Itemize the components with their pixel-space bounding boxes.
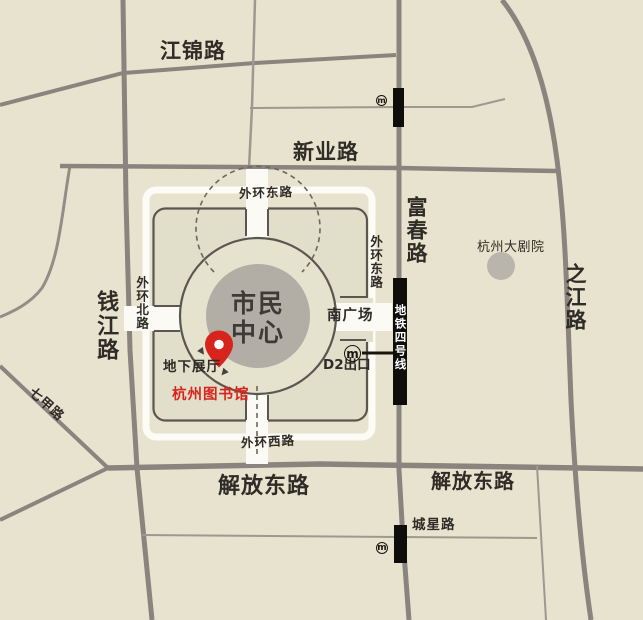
road-label-outer-east-top: 外环东路 — [239, 185, 293, 200]
road-label-outer-east-side: 外环东路 — [369, 235, 382, 289]
road-qijia-branch — [0, 468, 108, 520]
road-label-jiefang-right: 解放东路 — [431, 471, 515, 492]
metro-line4-label: 地铁四号线 — [394, 304, 406, 372]
place-label-south-square: 南广场 — [327, 309, 374, 324]
road-xinye — [60, 166, 556, 171]
road-label-chengxing: 城星路 — [412, 518, 456, 532]
road-minor-southeast — [537, 466, 546, 620]
metro-station-icon[interactable]: m — [376, 95, 387, 106]
road-label-zhijiang: 之江路 — [564, 263, 586, 332]
metro-m-glyph: m — [346, 347, 359, 361]
place-label-underground-hall: 地下展厅 — [163, 360, 221, 374]
road-minor-north-vertical — [249, 0, 255, 168]
road-label-jiangjin: 江锦路 — [160, 40, 226, 62]
road-label-outer-north: 外环北路 — [135, 276, 148, 330]
road-jiefang-east — [108, 464, 643, 469]
metro-station-north[interactable] — [393, 88, 404, 127]
road-label-xinye: 新业路 — [293, 141, 359, 163]
metro-m-glyph: m — [377, 96, 385, 105]
road-label-outer-west: 外环西路 — [241, 434, 296, 450]
metro-station-south[interactable] — [394, 525, 407, 563]
metro-station-icon[interactable]: m — [376, 542, 388, 554]
metro-station-icon[interactable]: m — [344, 345, 361, 362]
grand-theatre-building — [487, 252, 515, 280]
road-label-jiefang-left: 解放东路 — [218, 475, 310, 498]
map-canvas: 江锦路 新业路 富春路 钱江路 之江路 七甲路 解放东路 解放东路 城星路 外环… — [0, 0, 643, 620]
place-label-citizen-center: 市民中心 — [227, 290, 289, 348]
road-label-qianjiang: 钱江路 — [94, 290, 117, 362]
road-curved-connector — [0, 166, 70, 317]
road-chengxing — [142, 535, 537, 538]
road-label-fuchun: 富春路 — [405, 196, 427, 265]
metro-m-glyph: m — [377, 543, 386, 553]
place-label-grand-theatre: 杭州大剧院 — [477, 241, 545, 255]
place-label-hangzhou-library: 杭州图书馆 — [172, 388, 250, 403]
